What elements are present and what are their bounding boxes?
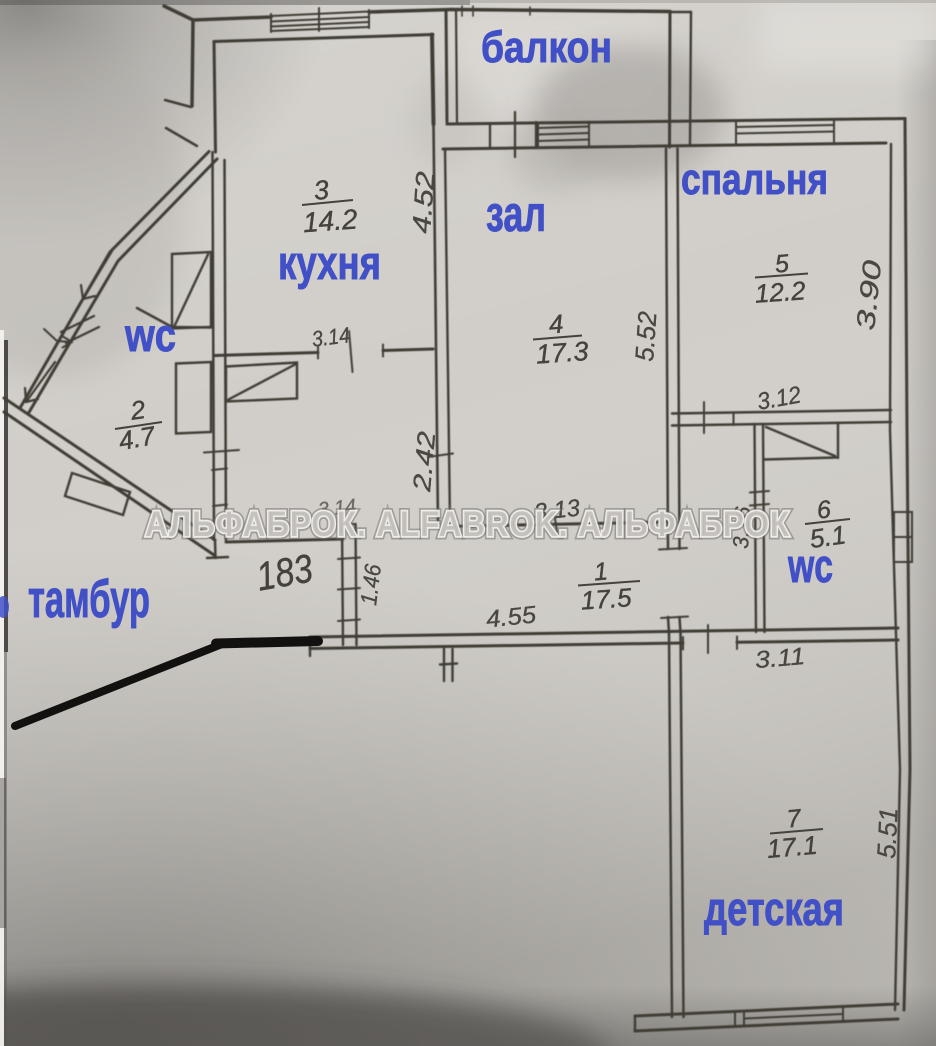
svg-text:3.14: 3.14 (310, 322, 351, 351)
svg-text:1: 1 (593, 557, 609, 586)
svg-text:4: 4 (548, 308, 565, 339)
svg-text:спальня: спальня (681, 155, 828, 204)
svg-text:детская: детская (704, 882, 844, 935)
svg-text:3: 3 (312, 175, 330, 206)
svg-text:17.5: 17.5 (580, 582, 633, 615)
svg-text:wc: wc (124, 309, 176, 361)
svg-text:балкон: балкон (481, 23, 612, 72)
svg-text:зал: зал (486, 186, 546, 242)
svg-text:3.11: 3.11 (754, 643, 806, 674)
svg-text:2.42: 2.42 (408, 430, 441, 494)
svg-text:АЛЬФАБРОК. ALFABROK. АЛЬФАБРОК: АЛЬФАБРОК. ALFABROK. АЛЬФАБРОК (145, 505, 790, 544)
svg-text:14.2: 14.2 (302, 203, 359, 238)
svg-text:кухня: кухня (278, 236, 381, 289)
svg-text:4.52: 4.52 (406, 170, 440, 235)
svg-text:12.2: 12.2 (754, 275, 807, 308)
svg-text:1.46: 1.46 (355, 563, 386, 607)
svg-text:5.52: 5.52 (629, 310, 662, 362)
svg-text:5.51: 5.51 (871, 807, 904, 860)
svg-text:тамбур: тамбур (28, 570, 150, 629)
svg-text:17.1: 17.1 (766, 830, 819, 864)
svg-text:17.3: 17.3 (535, 336, 590, 370)
svg-text:5.1: 5.1 (808, 519, 848, 554)
svg-text:4.55: 4.55 (485, 601, 538, 633)
